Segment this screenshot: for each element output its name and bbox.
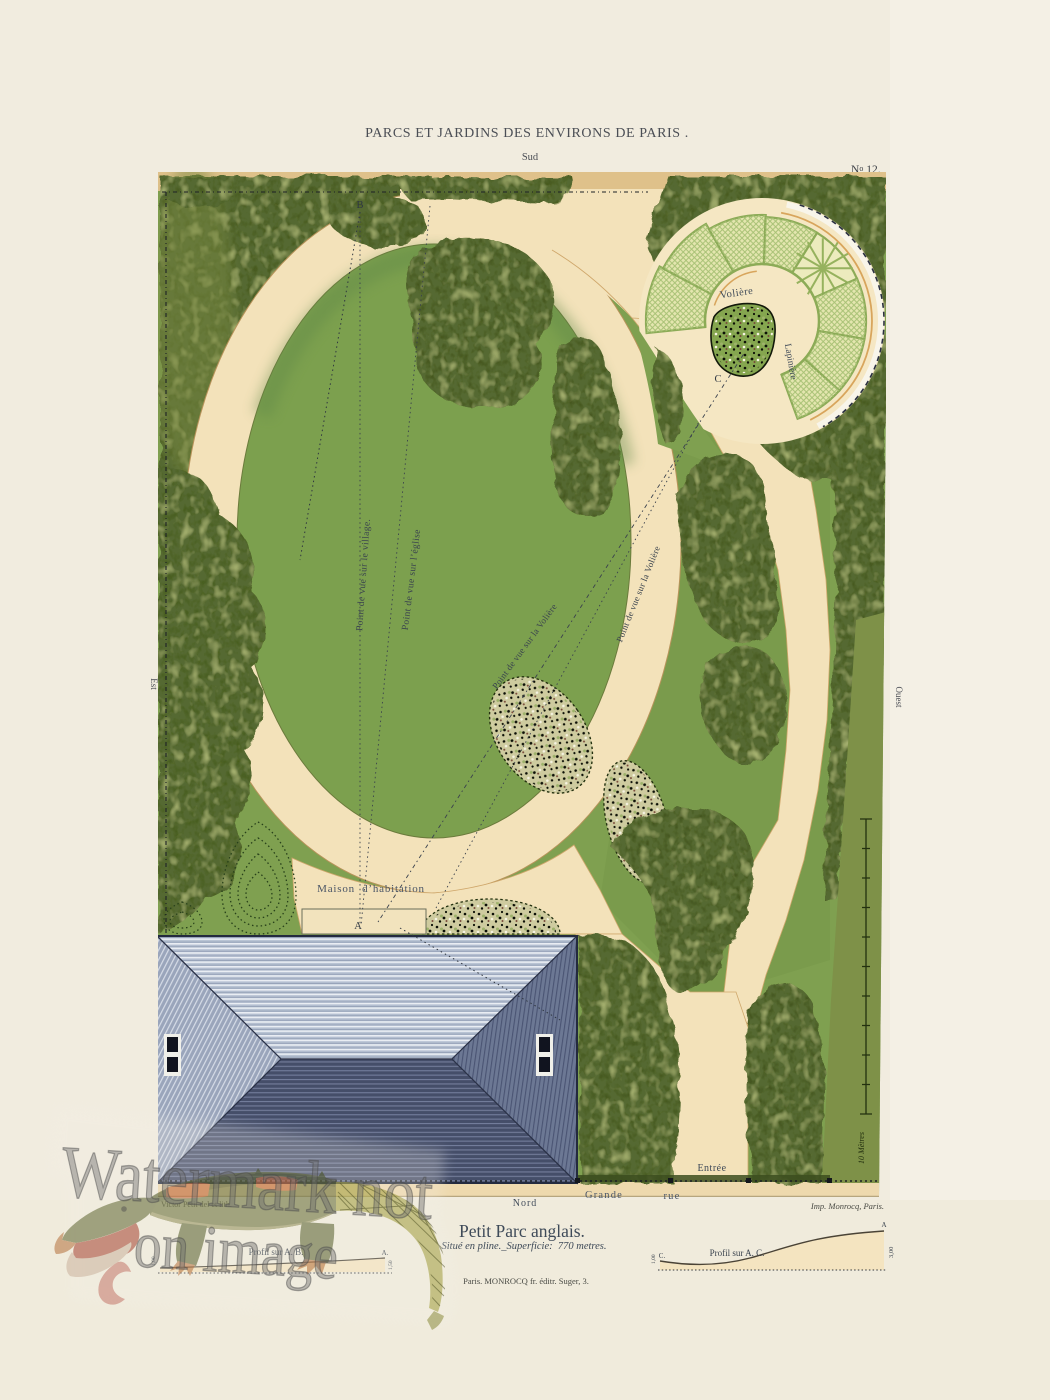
svg-text:Paris. MONROCQ fr. éditr. Suge: Paris. MONROCQ fr. éditr. Suger, 3. <box>463 1276 589 1286</box>
svg-text:Profil sur A. C.: Profil sur A. C. <box>710 1248 765 1258</box>
svg-text:Petit Parc anglais.: Petit Parc anglais. <box>459 1221 585 1241</box>
svg-text:Sud: Sud <box>522 152 539 163</box>
svg-text:B: B <box>356 200 363 211</box>
svg-text:C: C <box>714 374 721 385</box>
svg-text:on image: on image <box>132 1208 340 1294</box>
svg-text:Nord: Nord <box>513 1198 538 1209</box>
svg-text:Grande: Grande <box>585 1190 623 1201</box>
svg-text:PARCS ET JARDINS DES ENVIRONS: PARCS ET JARDINS DES ENVIRONS DE PARIS . <box>365 126 689 141</box>
svg-text:A: A <box>881 1221 886 1229</box>
svg-text:3,00: 3,00 <box>888 1247 895 1258</box>
svg-text:Situé en pline._Superficie: 7: Situé en pline._Superficie: 770 metres. <box>442 1241 607 1252</box>
svg-text:10 Mètres: 10 Mètres <box>857 1132 866 1164</box>
svg-text:A: A <box>354 921 362 932</box>
svg-text:C.: C. <box>659 1252 666 1260</box>
svg-text:1,00: 1,00 <box>651 1254 657 1264</box>
svg-text:rue: rue <box>663 1191 680 1202</box>
svg-text:Est: Est <box>149 678 159 690</box>
svg-text:Imp. Monrocq, Paris.: Imp. Monrocq, Paris. <box>810 1201 884 1211</box>
svg-text:Entrée: Entrée <box>697 1163 726 1174</box>
svg-text:Ouest: Ouest <box>894 687 904 708</box>
svg-text:Maison d’habitation: Maison d’habitation <box>317 883 425 895</box>
